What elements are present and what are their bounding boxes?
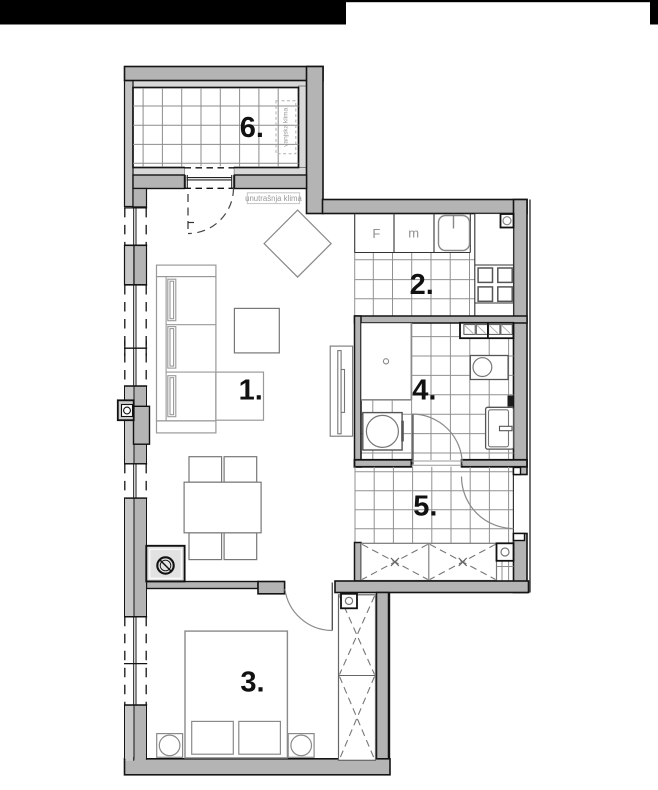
svg-text:4.: 4. xyxy=(412,375,436,407)
svg-text:5.: 5. xyxy=(413,491,437,523)
svg-text:m: m xyxy=(408,225,419,240)
svg-text:F: F xyxy=(372,226,380,241)
svg-text:2.: 2. xyxy=(410,269,434,301)
svg-text:vanjska klima: vanjska klima xyxy=(283,107,290,146)
svg-text:3.: 3. xyxy=(240,666,264,698)
svg-text:unutrašnja klima: unutrašnja klima xyxy=(245,194,302,203)
svg-text:1.: 1. xyxy=(239,375,263,407)
svg-text:6.: 6. xyxy=(240,112,264,144)
